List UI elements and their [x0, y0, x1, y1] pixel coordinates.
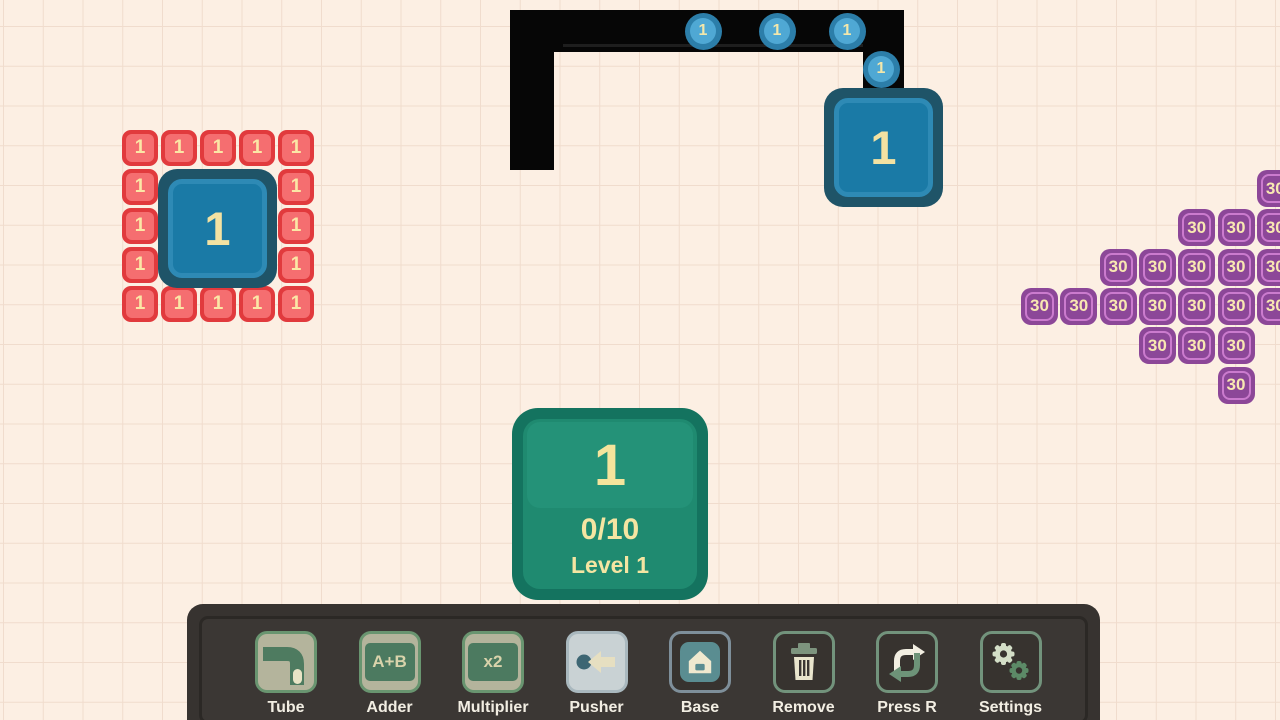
tile-value: 1	[282, 134, 310, 162]
tile-value: 30	[1104, 253, 1133, 282]
purple-number-tile: 30	[1139, 327, 1176, 364]
purple-number-tile: 30	[1178, 327, 1215, 364]
toolbar-label-adder: Adder	[366, 699, 412, 717]
tile-value: 30	[1064, 292, 1093, 321]
tile-value: 30	[1025, 292, 1054, 321]
purple-number-tile: 30	[1021, 288, 1058, 325]
toolbar-button-settings[interactable]	[980, 631, 1042, 693]
tile-value: 1	[282, 290, 310, 318]
base-machine[interactable]: 1	[824, 88, 943, 207]
toolbar-button-base[interactable]	[669, 631, 731, 693]
toolbar-button-multiplier[interactable]: x2	[462, 631, 524, 693]
tile-value: 30	[1222, 213, 1251, 242]
tile-value: 1	[243, 134, 271, 162]
toolbar-button-tube[interactable]	[255, 631, 317, 693]
toolbar-button-remove[interactable]	[773, 631, 835, 693]
pusher-icon	[574, 639, 620, 685]
purple-number-tile: 30	[1218, 209, 1255, 246]
red-number-tile: 1	[200, 130, 236, 166]
orb-value: 1	[764, 18, 790, 44]
red-number-tile: 1	[161, 130, 197, 166]
trash-icon	[781, 639, 827, 685]
red-number-tile: 1	[200, 286, 236, 322]
tile-value: 1	[165, 290, 193, 318]
number-orb: 1	[863, 51, 900, 88]
operator-text: x2	[484, 652, 503, 672]
tile-value: 30	[1261, 292, 1280, 321]
toolbar-item-base: Base	[669, 631, 731, 720]
purple-number-tile: 30	[1257, 288, 1280, 325]
red-number-tile: 1	[122, 130, 158, 166]
goal-level: Level 1	[523, 552, 697, 579]
toolbar-item-adder: A+BAdder	[359, 631, 421, 720]
toolbar-item-press-r: Press R	[876, 631, 938, 720]
toolbar-label-pusher: Pusher	[569, 699, 623, 717]
settings-icon	[988, 639, 1034, 685]
toolbar-label-tube: Tube	[267, 699, 304, 717]
red-number-tile: 1	[278, 247, 314, 283]
tile-value: 30	[1222, 253, 1251, 282]
red-number-tile: 1	[239, 286, 275, 322]
goal-progress: 0/10	[523, 513, 697, 547]
purple-number-tile: 30	[1178, 288, 1215, 325]
toolbar-label-press-r: Press R	[877, 699, 937, 717]
toolbar-button-press-r[interactable]	[876, 631, 938, 693]
purple-number-tile: 30	[1218, 288, 1255, 325]
tile-value: 30	[1182, 253, 1211, 282]
purple-number-tile: 30	[1218, 367, 1255, 404]
toolbar-button-adder[interactable]: A+B	[359, 631, 421, 693]
tile-value: 30	[1222, 292, 1251, 321]
tile-value: 30	[1182, 331, 1211, 360]
tile-value: 30	[1261, 213, 1280, 242]
rotate-icon	[884, 639, 930, 685]
tube-icon	[263, 639, 309, 685]
base-icon	[680, 642, 720, 682]
toolbar: TubeA+BAdderx2Multiplier Pusher Base Rem…	[187, 604, 1100, 720]
purple-number-tile: 30	[1060, 288, 1097, 325]
tile-value: 1	[282, 212, 310, 240]
base-machine[interactable]: 1	[158, 169, 277, 288]
orb-value: 1	[690, 18, 716, 44]
toolbar-button-pusher[interactable]	[566, 631, 628, 693]
purple-number-tile: 30	[1139, 249, 1176, 286]
toolbar-item-settings: Settings	[980, 631, 1042, 720]
red-number-tile: 1	[278, 130, 314, 166]
red-number-tile: 1	[278, 286, 314, 322]
red-number-tile: 1	[239, 130, 275, 166]
number-orb: 1	[685, 13, 722, 50]
tile-value: 1	[282, 173, 310, 201]
purple-number-tile: 30	[1100, 288, 1137, 325]
goal-base[interactable]: 1 0/10 Level 1	[512, 408, 708, 600]
number-orb: 1	[829, 13, 866, 50]
red-number-tile: 1	[122, 286, 158, 322]
purple-number-tile: 30	[1257, 170, 1280, 207]
red-number-tile: 1	[278, 169, 314, 205]
tile-value: 1	[126, 134, 154, 162]
tile-value: 30	[1143, 292, 1172, 321]
toolbar-label-remove: Remove	[772, 699, 834, 717]
toolbar-item-tube: Tube	[255, 631, 317, 720]
purple-number-tile: 30	[1257, 249, 1280, 286]
purple-number-tile: 30	[1218, 249, 1255, 286]
orb-value: 1	[868, 56, 894, 82]
game-board[interactable]: 1111 11111111111111113030303030303030303…	[0, 0, 1280, 720]
tile-value: 30	[1182, 213, 1211, 242]
goal-value: 1	[527, 422, 693, 508]
tile-value: 30	[1222, 371, 1251, 400]
toolbar-label-settings: Settings	[979, 699, 1042, 717]
tile-value: 1	[204, 134, 232, 162]
red-number-tile: 1	[122, 247, 158, 283]
operator-text: A+B	[372, 652, 406, 672]
tile-value: 1	[126, 290, 154, 318]
toolbar-frame	[199, 616, 1088, 720]
purple-number-tile: 30	[1100, 249, 1137, 286]
orb-value: 1	[834, 18, 860, 44]
multiplier-icon: x2	[468, 643, 518, 681]
red-number-tile: 1	[278, 208, 314, 244]
tile-value: 1	[243, 290, 271, 318]
tile-value: 1	[204, 290, 232, 318]
tile-value: 30	[1222, 331, 1251, 360]
red-number-tile: 1	[122, 208, 158, 244]
tile-value: 30	[1143, 253, 1172, 282]
base-value: 1	[168, 179, 267, 278]
toolbar-label-multiplier: Multiplier	[457, 699, 528, 717]
red-number-tile: 1	[122, 169, 158, 205]
toolbar-item-multiplier: x2Multiplier	[462, 631, 524, 720]
goal-panel: 1 0/10 Level 1	[523, 419, 697, 589]
tile-value: 1	[282, 251, 310, 279]
purple-number-tile: 30	[1178, 209, 1215, 246]
adder-icon: A+B	[365, 643, 415, 681]
purple-number-tile: 30	[1139, 288, 1176, 325]
tile-value: 30	[1261, 253, 1280, 282]
tile-value: 1	[126, 212, 154, 240]
tile-value: 30	[1104, 292, 1133, 321]
tile-value: 30	[1143, 331, 1172, 360]
purple-number-tile: 30	[1257, 209, 1280, 246]
toolbar-item-remove: Remove	[773, 631, 835, 720]
toolbar-label-base: Base	[681, 699, 719, 717]
base-value: 1	[834, 98, 933, 197]
tile-value: 1	[126, 251, 154, 279]
house-icon	[686, 648, 714, 676]
toolbar-item-pusher: Pusher	[566, 631, 628, 720]
tile-value: 30	[1182, 292, 1211, 321]
number-orb: 1	[759, 13, 796, 50]
tile-value: 1	[165, 134, 193, 162]
tile-value: 1	[126, 173, 154, 201]
red-number-tile: 1	[161, 286, 197, 322]
purple-number-tile: 30	[1178, 249, 1215, 286]
purple-number-tile: 30	[1218, 327, 1255, 364]
tile-value: 30	[1261, 174, 1280, 203]
